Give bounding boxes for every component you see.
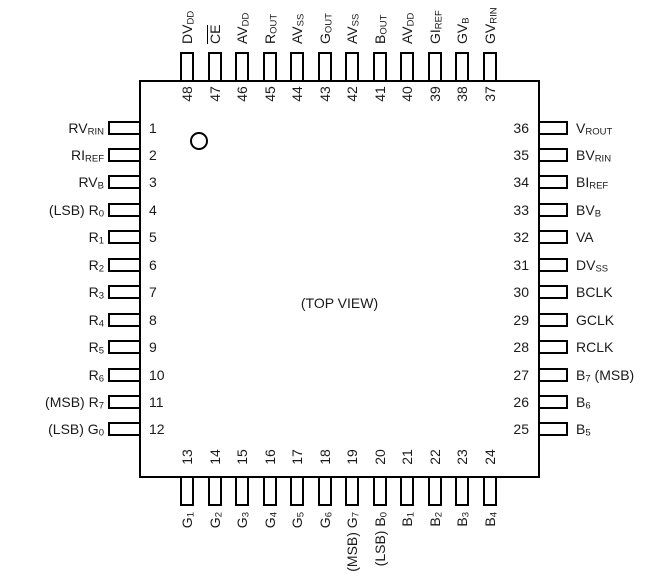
pin-label-39: GIREF [427, 0, 443, 44]
pin-number-32: 32 [489, 229, 529, 245]
pin-number-19: 19 [344, 447, 360, 467]
pin-label-43: GOUT [317, 0, 333, 44]
pin-box-45 [263, 52, 277, 82]
pin-number-24: 24 [482, 447, 498, 467]
subscript: 1 [99, 236, 104, 247]
subscript: 6 [99, 373, 104, 384]
pin-label-1: RVRIN [0, 120, 104, 136]
subscript: 0 [99, 428, 104, 439]
pin-number-33: 33 [489, 202, 529, 218]
pin-box-43 [318, 52, 332, 82]
pin-box-30 [538, 285, 568, 299]
subscript: 6 [323, 512, 334, 517]
pin1-indicator-circle [190, 132, 208, 150]
pin-box-23 [455, 476, 469, 506]
pin-box-20 [373, 476, 387, 506]
pin-label-37: GVRIN [482, 0, 498, 44]
pin-label-19: (MSB) G7 [344, 512, 360, 574]
pin-box-24 [483, 476, 497, 506]
pin-box-3 [108, 175, 141, 189]
pin-number-26: 26 [489, 394, 529, 410]
pin-box-12 [108, 422, 141, 436]
pin-number-30: 30 [489, 284, 529, 300]
pin-number-42: 42 [344, 84, 360, 104]
subscript: 0 [99, 209, 104, 220]
pin-box-32 [538, 230, 568, 244]
pin-box-7 [108, 285, 141, 299]
pin-number-39: 39 [427, 84, 443, 104]
pin-number-38: 38 [454, 84, 470, 104]
pin-box-33 [538, 203, 568, 217]
pin-number-48: 48 [179, 84, 195, 104]
pin-label-20: (LSB) B0 [372, 512, 388, 574]
pin-box-5 [108, 230, 141, 244]
pin-box-11 [108, 395, 141, 409]
pin-box-15 [235, 476, 249, 506]
pin-label-11: (MSB) R7 [0, 394, 104, 410]
pin-label-16: G4 [262, 512, 278, 574]
pin-number-21: 21 [399, 447, 415, 467]
subscript: 2 [99, 263, 104, 274]
pin-label-21: B1 [399, 512, 415, 574]
subscript: 7 [351, 512, 362, 517]
subscript: 5 [585, 428, 590, 439]
pin-label-13: G1 [179, 512, 195, 574]
top-view-label: (TOP VIEW) [139, 295, 540, 311]
subscript: ROUT [585, 126, 612, 137]
pin-box-10 [108, 368, 141, 382]
subscript: SS [595, 263, 608, 274]
pin-number-44: 44 [289, 84, 305, 104]
pin-label-6: R2 [0, 257, 104, 273]
pin-label-26: B6 [576, 394, 650, 410]
pin-box-22 [428, 476, 442, 506]
pin-box-38 [455, 52, 469, 82]
pin-label-33: BVB [576, 202, 650, 218]
pin-label-17: G5 [289, 512, 305, 574]
subscript: 3 [241, 512, 252, 517]
pin-number-40: 40 [399, 84, 415, 104]
subscript: 3 [99, 291, 104, 302]
pin-box-19 [345, 476, 359, 506]
pin-box-47 [208, 52, 222, 82]
pin-box-37 [483, 52, 497, 82]
pin-box-35 [538, 148, 568, 162]
subscript: REF [433, 10, 444, 29]
subscript: 4 [99, 318, 104, 329]
pin-number-17: 17 [289, 447, 305, 467]
pin-number-37: 37 [482, 84, 498, 104]
pin-number-20: 20 [372, 447, 388, 467]
pin-box-4 [108, 203, 141, 217]
pin-box-40 [400, 52, 414, 82]
pin-label-23: B3 [454, 512, 470, 574]
pin-number-10: 10 [149, 367, 189, 383]
pin-label-27: B7 (MSB) [576, 367, 650, 383]
pin-box-14 [208, 476, 222, 506]
pin-number-13: 13 [179, 447, 195, 467]
pin-label-46: AVDD [234, 0, 250, 44]
subscript: 0 [378, 512, 389, 517]
pin-label-22: B2 [427, 512, 443, 574]
pin-box-29 [538, 313, 568, 327]
pin-label-12: (LSB) G0 [0, 421, 104, 437]
subscript: 7 [585, 373, 590, 384]
pin-label-48: DVDD [179, 0, 195, 44]
pin-label-38: GVB [454, 0, 470, 44]
pin-number-23: 23 [454, 447, 470, 467]
pin-box-26 [538, 395, 568, 409]
pin-box-16 [263, 476, 277, 506]
pin-number-25: 25 [489, 421, 529, 437]
pin-label-29: GCLK [576, 312, 650, 328]
subscript: DD [186, 11, 197, 25]
pin-box-6 [108, 258, 141, 272]
pin-number-11: 11 [149, 394, 189, 410]
pin-label-47: CE [207, 0, 223, 44]
subscript: 4 [268, 512, 279, 517]
pin-number-1: 1 [149, 120, 189, 136]
pin-label-7: R3 [0, 284, 104, 300]
pin-label-3: RVB [0, 174, 104, 190]
pin-box-31 [538, 258, 568, 272]
pin-number-4: 4 [149, 202, 189, 218]
pin-number-27: 27 [489, 367, 529, 383]
pin-number-9: 9 [149, 339, 189, 355]
pin-label-34: BIREF [576, 174, 650, 190]
subscript: B [98, 181, 104, 192]
pin-box-39 [428, 52, 442, 82]
pin-box-25 [538, 422, 568, 436]
subscript: OUT [268, 14, 279, 34]
pin-number-43: 43 [317, 84, 333, 104]
subscript: DD [406, 13, 417, 27]
pin-box-28 [538, 340, 568, 354]
pin-number-22: 22 [427, 447, 443, 467]
pin-label-40: AVDD [399, 0, 415, 44]
pin-box-2 [108, 148, 141, 162]
pin-box-8 [108, 313, 141, 327]
subscript: 3 [461, 512, 472, 517]
pin-label-42: AVSS [344, 0, 360, 44]
subscript: 2 [433, 512, 444, 517]
subscript: 6 [585, 401, 590, 412]
pin-box-46 [235, 52, 249, 82]
subscript: 5 [296, 512, 307, 517]
pin-number-34: 34 [489, 174, 529, 190]
subscript: B [595, 209, 601, 220]
pin-number-12: 12 [149, 421, 189, 437]
pin-box-1 [108, 121, 141, 135]
overline-text: CE [207, 25, 222, 44]
pin-box-27 [538, 368, 568, 382]
pin-box-9 [108, 340, 141, 354]
pin-number-5: 5 [149, 229, 189, 245]
pin-number-6: 6 [149, 257, 189, 273]
subscript: 1 [406, 512, 417, 517]
pin-box-13 [180, 476, 194, 506]
subscript: 4 [488, 512, 499, 517]
pin-label-41: BOUT [372, 0, 388, 44]
pin-number-45: 45 [262, 84, 278, 104]
subscript: SS [351, 14, 362, 27]
pin-number-29: 29 [489, 312, 529, 328]
pin-number-41: 41 [372, 84, 388, 104]
pin-box-34 [538, 175, 568, 189]
subscript: REF [85, 154, 104, 165]
pin-box-17 [290, 476, 304, 506]
subscript: 1 [186, 512, 197, 517]
pin-box-42 [345, 52, 359, 82]
pin-box-41 [373, 52, 387, 82]
pin-label-8: R4 [0, 312, 104, 328]
pin-number-46: 46 [234, 84, 250, 104]
pin-number-8: 8 [149, 312, 189, 328]
pin-label-25: B5 [576, 421, 650, 437]
pin-label-31: DVSS [576, 257, 650, 273]
pinout-diagram: (TOP VIEW) 48DVDD47CE46AVDD45ROUT44AVSS4… [0, 0, 650, 574]
pin-label-45: ROUT [262, 0, 278, 44]
pin-box-18 [318, 476, 332, 506]
pin-label-18: G6 [317, 512, 333, 574]
pin-number-7: 7 [149, 284, 189, 300]
subscript: SS [296, 14, 307, 27]
pin-box-48 [180, 52, 194, 82]
pin-number-35: 35 [489, 147, 529, 163]
pin-label-35: BVRIN [576, 147, 650, 163]
subscript: 2 [213, 512, 224, 517]
pin-label-15: G3 [234, 512, 250, 574]
subscript: DD [241, 13, 252, 27]
pin-number-2: 2 [149, 147, 189, 163]
subscript: RIN [88, 126, 104, 137]
pin-label-24: B4 [482, 512, 498, 574]
pin-label-5: R1 [0, 229, 104, 245]
pin-number-31: 31 [489, 257, 529, 273]
subscript: RIN [488, 7, 499, 23]
pin-box-44 [290, 52, 304, 82]
subscript: B [461, 17, 472, 23]
pin-box-21 [400, 476, 414, 506]
pin-number-16: 16 [262, 447, 278, 467]
pin-label-32: VA [576, 229, 650, 245]
pin-number-14: 14 [207, 447, 223, 467]
subscript: 7 [99, 401, 104, 412]
pin-number-18: 18 [317, 447, 333, 467]
pin-number-28: 28 [489, 339, 529, 355]
subscript: OUT [378, 15, 389, 35]
pin-box-36 [538, 121, 568, 135]
pin-label-14: G2 [207, 512, 223, 574]
pin-number-47: 47 [207, 84, 223, 104]
pin-label-4: (LSB) R0 [0, 202, 104, 218]
pin-label-10: R6 [0, 367, 104, 383]
pin-label-30: BCLK [576, 284, 650, 300]
pin-number-3: 3 [149, 174, 189, 190]
subscript: OUT [323, 13, 334, 33]
subscript: RIN [595, 154, 611, 165]
pin-label-36: VROUT [576, 120, 650, 136]
pin-number-15: 15 [234, 447, 250, 467]
subscript: 5 [99, 346, 104, 357]
pin-label-44: AVSS [289, 0, 305, 44]
pin-label-28: RCLK [576, 339, 650, 355]
pin-label-9: R5 [0, 339, 104, 355]
pin-number-36: 36 [489, 120, 529, 136]
subscript: REF [589, 181, 608, 192]
pin-label-2: RIREF [0, 147, 104, 163]
